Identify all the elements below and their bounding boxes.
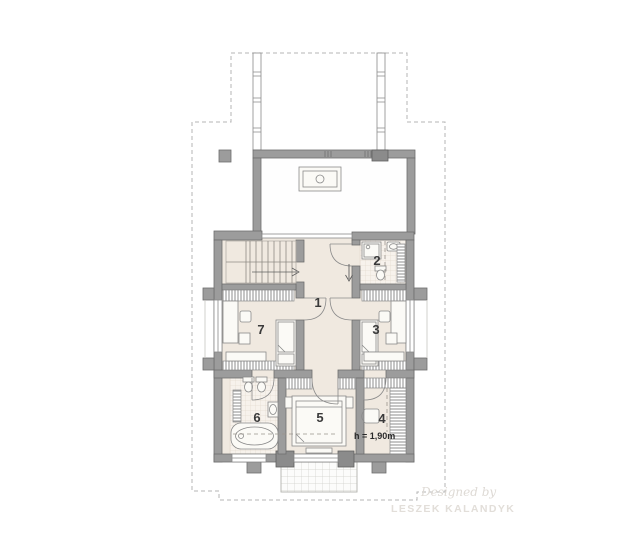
- chimney-right: [377, 53, 385, 150]
- dresser-icon: [226, 352, 266, 361]
- chimney-left: [253, 53, 261, 150]
- desk-icon: [223, 301, 238, 343]
- nightstand-icon: [285, 397, 292, 408]
- watermark-name: LESZEK KALANDYK: [391, 503, 515, 515]
- floor-plan-canvas: 1 2 3 4 5 6 7 h = 1,90m Designed by LESZ…: [0, 0, 638, 556]
- chair-icon: [379, 311, 390, 322]
- floor-plan-drawing: [0, 0, 638, 556]
- room-label-2: 2: [366, 254, 388, 268]
- height-note: h = 1,90m: [354, 431, 395, 441]
- bench-icon: [306, 448, 332, 453]
- room-label-6: 6: [246, 411, 268, 425]
- room-label-1: 1: [307, 296, 329, 310]
- radiator-icon: [397, 244, 405, 282]
- dresser-icon: [364, 352, 404, 361]
- balcony-door: [294, 454, 338, 462]
- room-label-5: 5: [309, 411, 331, 425]
- void-railing: [262, 234, 352, 238]
- nightstand-icon: [346, 397, 353, 408]
- room-label-3: 3: [365, 323, 387, 337]
- chimney-icon: [299, 167, 341, 191]
- sink-icon: [268, 402, 278, 417]
- chair-icon: [240, 311, 251, 322]
- room-label-4: 4: [371, 412, 393, 426]
- room-label-7: 7: [250, 323, 272, 337]
- radiator-icon: [233, 390, 241, 422]
- watermark-prefix: Designed by: [421, 485, 496, 499]
- bathtub-icon: [231, 423, 278, 449]
- bed-icon: [276, 320, 296, 366]
